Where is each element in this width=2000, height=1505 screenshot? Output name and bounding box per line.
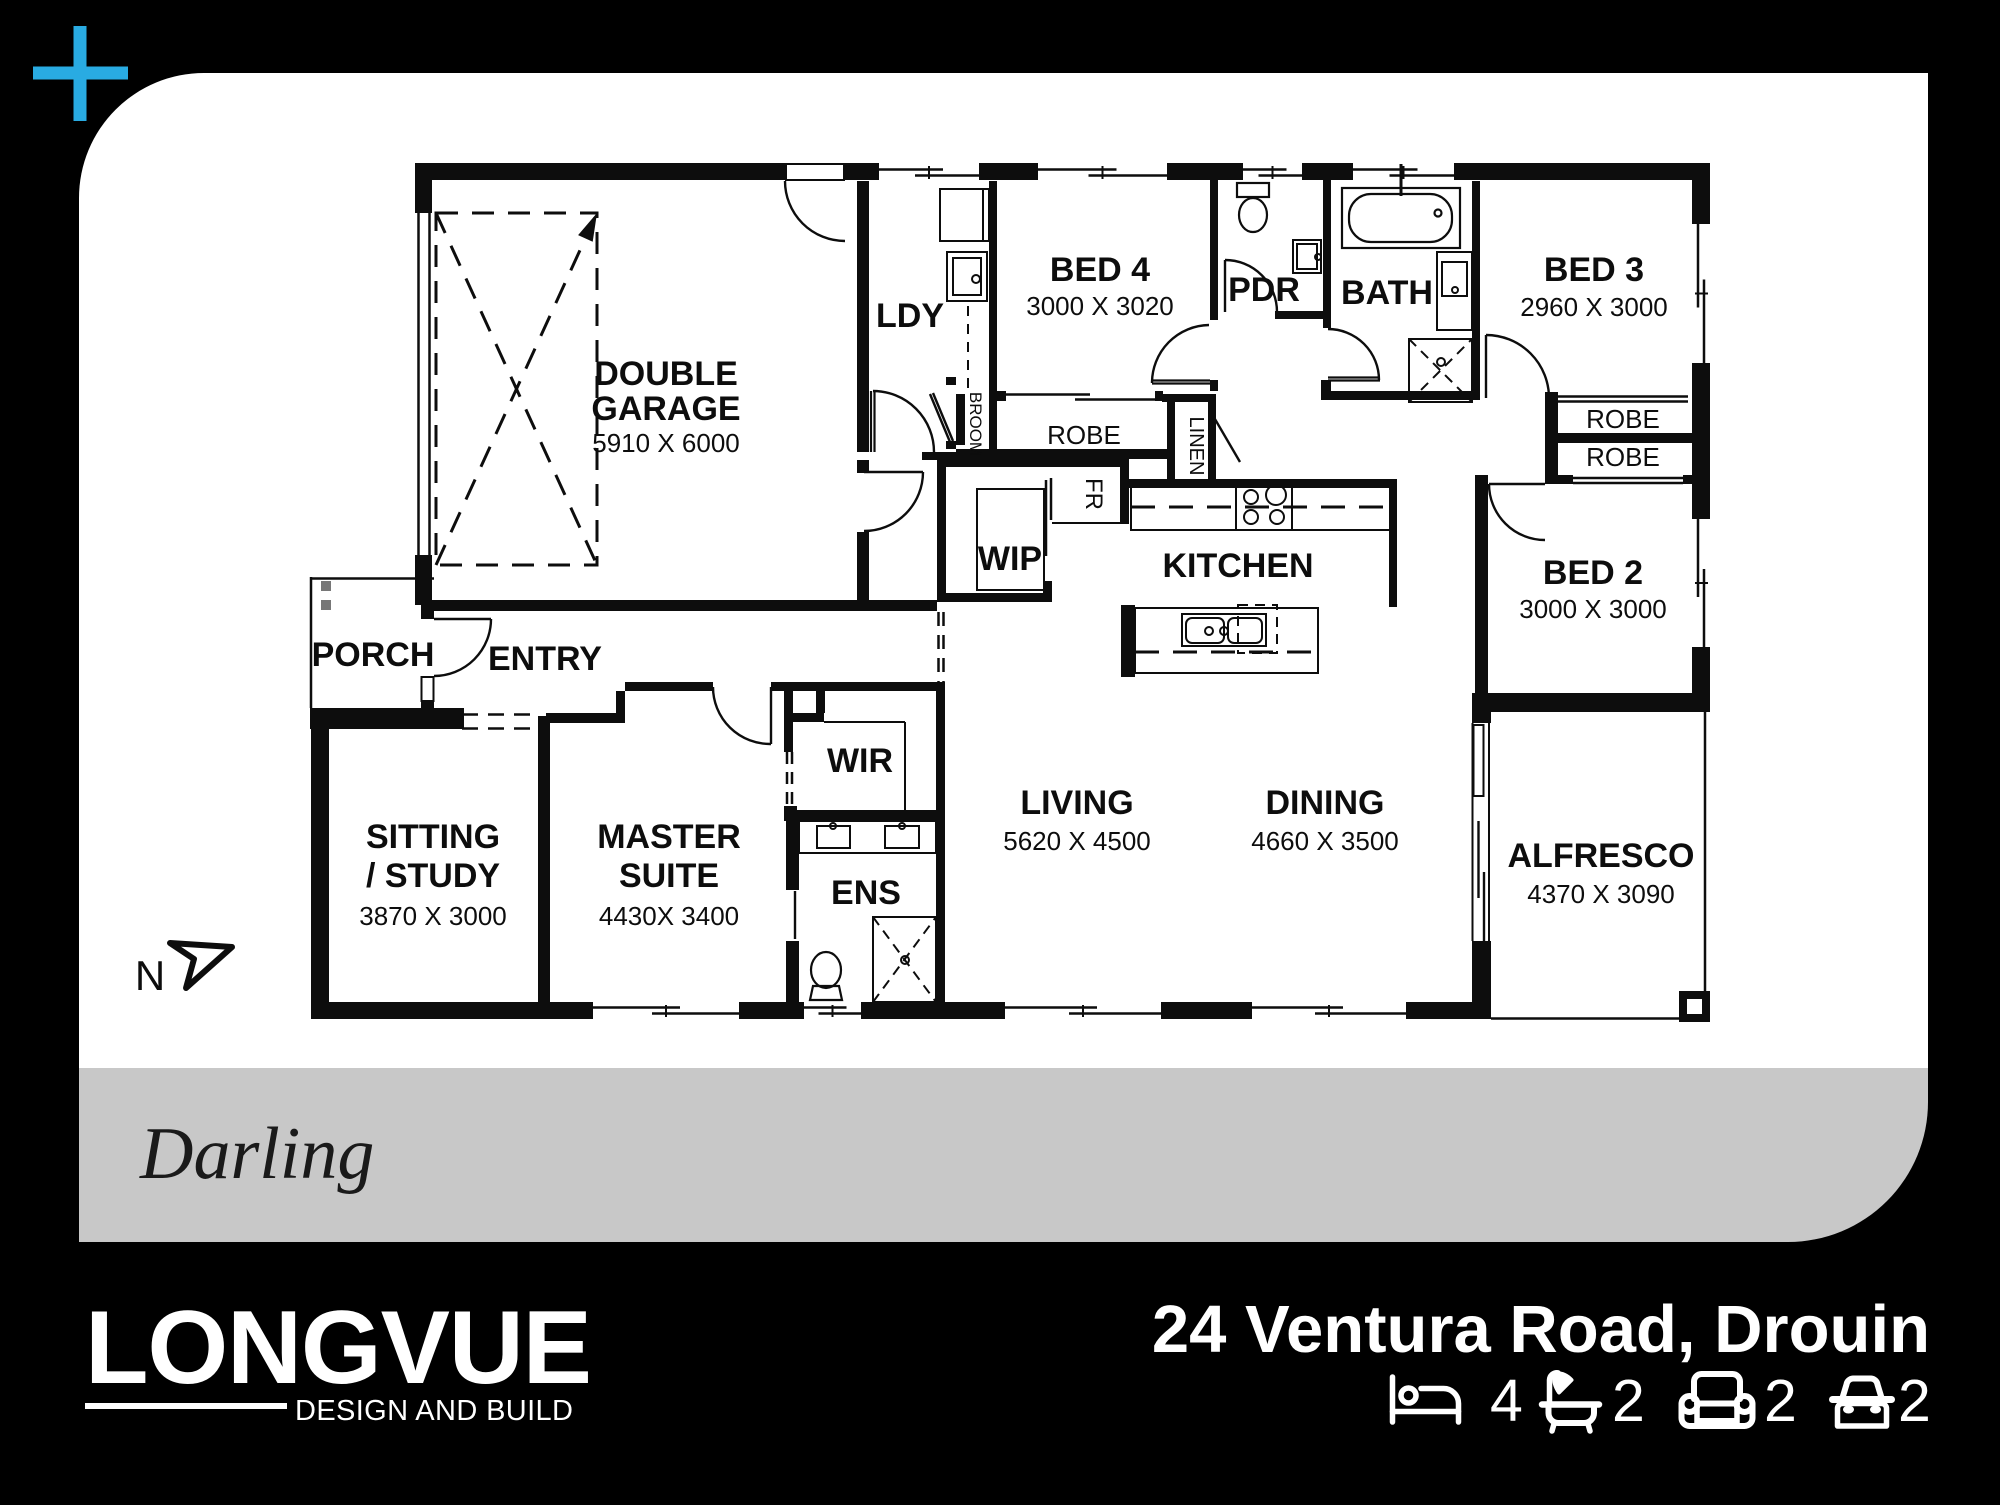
svg-text:FR: FR bbox=[1080, 478, 1107, 510]
svg-text:2960 X 3000: 2960 X 3000 bbox=[1520, 292, 1667, 322]
svg-text:BROOM: BROOM bbox=[966, 392, 985, 456]
svg-text:ROBE: ROBE bbox=[1586, 404, 1660, 434]
svg-text:ENS: ENS bbox=[831, 874, 901, 912]
svg-text:4370 X 3090: 4370 X 3090 bbox=[1527, 879, 1674, 909]
svg-text:5620 X 4500: 5620 X 4500 bbox=[1003, 826, 1150, 856]
svg-text:PDR: PDR bbox=[1228, 271, 1300, 309]
svg-text:SUITE: SUITE bbox=[619, 857, 719, 895]
svg-text:Darling: Darling bbox=[139, 1113, 374, 1195]
svg-text:LDY: LDY bbox=[876, 297, 944, 335]
svg-text:4: 4 bbox=[1490, 1368, 1523, 1434]
svg-text:ALFRESCO: ALFRESCO bbox=[1508, 837, 1695, 875]
svg-text:SITTING: SITTING bbox=[366, 818, 500, 856]
svg-text:ENTRY: ENTRY bbox=[488, 640, 602, 678]
svg-text:ROBE: ROBE bbox=[1047, 420, 1121, 450]
svg-text:WIP: WIP bbox=[978, 540, 1042, 578]
svg-text:3000 X 3000: 3000 X 3000 bbox=[1519, 594, 1666, 624]
svg-text:3870 X 3000: 3870 X 3000 bbox=[359, 901, 506, 931]
svg-text:DESIGN AND BUILD: DESIGN AND BUILD bbox=[295, 1395, 573, 1427]
svg-text:N: N bbox=[135, 952, 165, 999]
svg-text:LINEN: LINEN bbox=[1185, 417, 1207, 476]
svg-text:3000 X 3020: 3000 X 3020 bbox=[1026, 291, 1173, 321]
svg-text:DINING: DINING bbox=[1266, 784, 1385, 822]
svg-text:LONGVUE: LONGVUE bbox=[85, 1290, 592, 1406]
svg-text:2: 2 bbox=[1612, 1368, 1645, 1434]
svg-text:MASTER: MASTER bbox=[597, 818, 741, 856]
svg-text:4660 X 3500: 4660 X 3500 bbox=[1251, 826, 1398, 856]
svg-text:2: 2 bbox=[1898, 1368, 1931, 1434]
svg-text:/ STUDY: / STUDY bbox=[366, 857, 500, 895]
svg-text:24 Ventura Road, Drouin: 24 Ventura Road, Drouin bbox=[1152, 1292, 1930, 1367]
svg-text:BED 2: BED 2 bbox=[1543, 554, 1643, 592]
svg-text:BED 4: BED 4 bbox=[1050, 251, 1150, 289]
svg-text:5910 X 6000: 5910 X 6000 bbox=[592, 428, 739, 458]
svg-text:WIR: WIR bbox=[827, 742, 893, 780]
svg-text:4430X 3400: 4430X 3400 bbox=[599, 901, 739, 931]
svg-text:2: 2 bbox=[1764, 1368, 1797, 1434]
svg-text:PORCH: PORCH bbox=[312, 636, 435, 674]
svg-text:LIVING: LIVING bbox=[1020, 784, 1133, 822]
svg-text:DOUBLE: DOUBLE bbox=[594, 355, 738, 393]
svg-text:BATH: BATH bbox=[1341, 274, 1433, 312]
svg-text:GARAGE: GARAGE bbox=[591, 390, 740, 428]
svg-text:BED 3: BED 3 bbox=[1544, 251, 1644, 289]
svg-text:ROBE: ROBE bbox=[1586, 442, 1660, 472]
svg-text:KITCHEN: KITCHEN bbox=[1162, 547, 1313, 585]
